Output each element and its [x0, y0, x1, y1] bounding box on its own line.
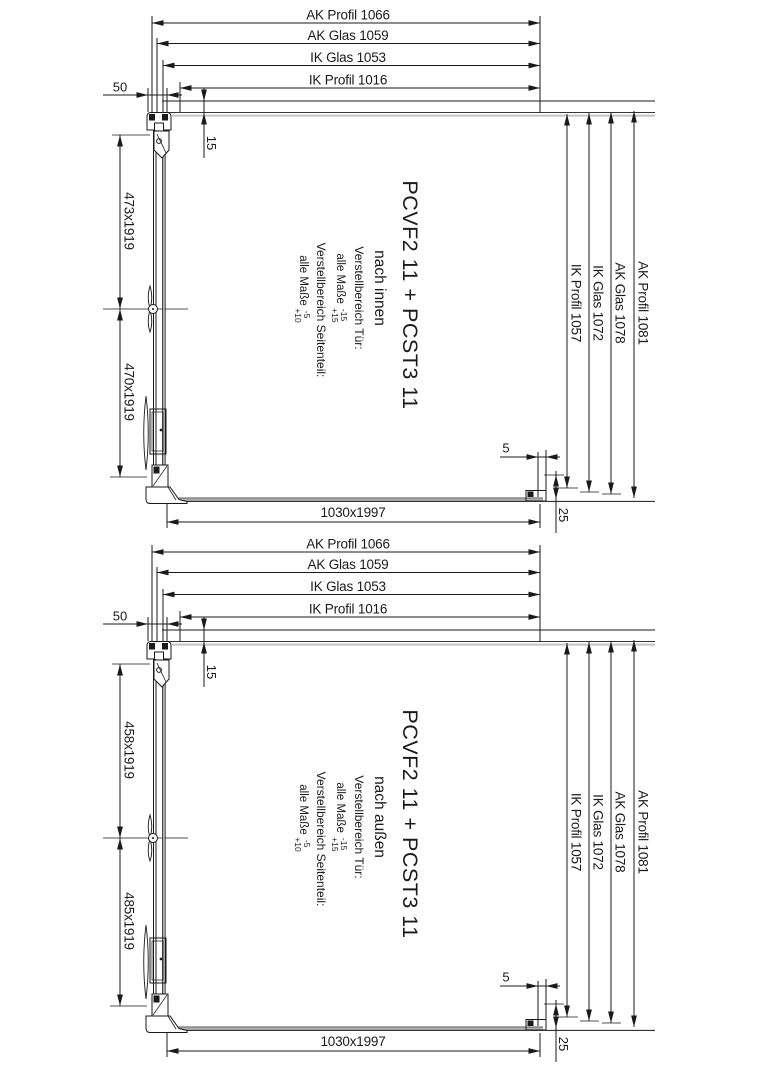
tolerance-plus: +10 [293, 308, 303, 323]
top-dim-label: AK Glas 1059 [308, 28, 389, 43]
top-dim-label: IK Profil 1016 [309, 602, 387, 617]
top-dim-label: IK Glas 1053 [310, 579, 386, 594]
tolerance-plus: +10 [293, 837, 303, 852]
tolerance-plus: +15 [330, 308, 340, 323]
top-dim-label: IK Glas 1053 [310, 50, 386, 65]
adjustment-door-text: alle Maße [334, 782, 346, 833]
right-dim-label: IK Glas 1072 [591, 265, 606, 341]
glass-size-label: 473x1919 [122, 192, 137, 250]
adjustment-door-text: alle Maße [334, 253, 346, 304]
adjustment-side-value: alle Maße-5+10 [293, 784, 312, 852]
adjustment-side-value: alle Maße-5+10 [293, 255, 312, 323]
technical-drawing: AK Profil 1066 AK Glas 1059 IK Glas 1053… [0, 0, 763, 1080]
offset-dim-label: 25 [556, 508, 571, 522]
right-dim-label: AK Glas 1078 [613, 263, 628, 344]
top-dim-label: AK Profil 1066 [306, 8, 390, 23]
adjustment-side-label: Verstellbereich Seitenteil: [314, 243, 328, 378]
offset-dim-label: 25 [556, 1037, 571, 1051]
drawing-title: PCVF2 11 + PCST3 11 [398, 709, 422, 938]
offset-dim-label: 50 [113, 80, 127, 95]
glass-size-label: 458x1919 [122, 721, 137, 779]
right-dim-label: AK Profil 1081 [636, 790, 651, 874]
drawing-title: PCVF2 11 + PCST3 11 [398, 180, 422, 409]
adjustment-door-label: Verstellbereich Tür: [352, 775, 366, 878]
offset-dim-label: 15 [204, 665, 219, 679]
offset-dim-label: 5 [502, 441, 509, 456]
adjustment-side-text: alle Maße [297, 784, 309, 835]
glass-size-label: 485x1919 [122, 892, 137, 950]
offset-dim-label: 5 [502, 970, 509, 985]
drawing-sheet: AK Profil 1066 AK Glas 1059 IK Glas 1053… [0, 0, 763, 1080]
right-dim-label: IK Profil 1057 [569, 264, 584, 342]
glass-size-label: 470x1919 [122, 363, 137, 421]
adjustment-door-value: alle Maße-15+15 [330, 253, 349, 322]
drawing-2-labels: AK Profil 1066 AK Glas 1059 IK Glas 1053… [113, 537, 651, 1052]
bottom-dim-label: 1030x1997 [320, 505, 385, 520]
offset-dim-label: 50 [113, 609, 127, 624]
bottom-dim-label: 1030x1997 [320, 1034, 385, 1049]
top-dim-label: AK Profil 1066 [306, 537, 390, 552]
top-dim-label: IK Profil 1016 [309, 73, 387, 88]
opening-direction-label: nach außen [371, 776, 388, 858]
opening-direction-label: nach innen [371, 250, 388, 326]
adjustment-door-value: alle Maße-15+15 [330, 782, 349, 851]
right-dim-label: IK Profil 1057 [569, 793, 584, 871]
top-dim-label: AK Glas 1059 [308, 557, 389, 572]
drawing-1-labels: AK Profil 1066 AK Glas 1059 IK Glas 1053… [113, 8, 651, 523]
tolerance-plus: +15 [330, 837, 340, 852]
adjustment-side-label: Verstellbereich Seitenteil: [314, 772, 328, 907]
adjustment-door-label: Verstellbereich Tür: [352, 246, 366, 349]
right-dim-label: AK Glas 1078 [613, 792, 628, 873]
adjustment-side-text: alle Maße [297, 255, 309, 306]
offset-dim-label: 15 [204, 136, 219, 150]
right-dim-label: AK Profil 1081 [636, 261, 651, 345]
right-dim-label: IK Glas 1072 [591, 794, 606, 870]
